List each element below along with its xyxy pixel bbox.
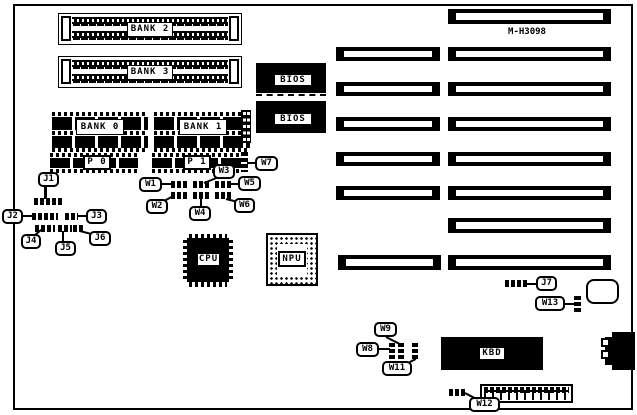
jumper-label-j2: J2 (2, 209, 23, 224)
bank1-label: BANK 1 (179, 119, 227, 135)
expansion-slot (448, 218, 611, 233)
jumper-label-j5: J5 (55, 241, 76, 256)
dip-pin-row (52, 148, 148, 152)
expansion-slot-ext (336, 152, 440, 166)
board-id-label: M-H3098 (497, 26, 557, 37)
jumper-w9 (398, 343, 404, 359)
p0-label: P 0 (83, 155, 111, 170)
expansion-slot-ext (336, 47, 440, 61)
simm-clip (229, 16, 239, 41)
jumper-label-w4: W4 (189, 206, 211, 221)
leader-line (378, 348, 390, 350)
jumper-label-w2: W2 (146, 199, 168, 214)
jumper-label-w5: W5 (238, 176, 261, 191)
jumper-label-j4: J4 (21, 234, 41, 249)
expansion-slot (448, 186, 611, 200)
simm-clip (61, 59, 71, 84)
bank0-label: BANK 0 (76, 119, 124, 135)
battery-outline (586, 279, 619, 304)
jumper-label-j7: J7 (536, 276, 557, 291)
jumper-label-w13: W13 (535, 296, 565, 311)
jumper-label-w7: W7 (255, 156, 278, 171)
keyboard-connector-pin (601, 338, 610, 347)
jumper-label-w8: W8 (356, 342, 379, 357)
jumper-label-w1: W1 (139, 177, 162, 192)
connector-j1 (34, 198, 64, 205)
jumper-label-j3: J3 (86, 209, 107, 224)
expansion-slot-ext (338, 255, 441, 270)
keyboard-connector (612, 332, 635, 370)
jumper-j5 (58, 225, 72, 232)
kbd-label: KBD (478, 346, 506, 361)
dip-chip-row (154, 136, 250, 148)
bank3-label: BANK 3 (127, 65, 173, 80)
leader-line (22, 215, 33, 217)
jumper-w8 (389, 343, 395, 359)
jumper-w11 (412, 343, 418, 359)
npu-label: NPU (278, 251, 306, 267)
bios1-label: BIOS (273, 73, 313, 87)
p1-label: P 1 (183, 155, 211, 170)
expansion-slot (448, 82, 611, 96)
jumper-label-w11: W11 (382, 361, 412, 376)
leader-line (44, 186, 47, 199)
jumper-label-w12: W12 (469, 397, 500, 412)
expansion-slot (448, 9, 611, 24)
expansion-slot (448, 117, 611, 131)
bank2-label: BANK 2 (127, 22, 173, 37)
cpu-label: CPU (196, 252, 221, 267)
expansion-slot (448, 47, 611, 61)
simm-clip (229, 59, 239, 84)
jumper-label-j6: J6 (89, 231, 111, 246)
bios-divider-dashed-line (256, 94, 326, 96)
dip-pin-row (154, 148, 250, 152)
jumper-j7 (505, 280, 527, 287)
dip-pin-row (52, 112, 148, 116)
jumper-j2 (32, 213, 58, 220)
keyboard-connector-pin (601, 350, 610, 359)
jumper-w12 (449, 389, 466, 396)
pin-header (241, 110, 251, 143)
jumper-label-w6: W6 (234, 198, 255, 213)
motherboard-diagram: M-H3098 BANK 2 BANK 3 BANK 0 BANK 1 P 0 … (0, 0, 637, 415)
jumper-label-w3: W3 (213, 164, 235, 179)
expansion-slot (448, 255, 611, 270)
bios2-label: BIOS (273, 112, 313, 126)
cpu-pins-bottom (189, 282, 227, 287)
expansion-slot-ext (336, 82, 440, 96)
jumper-label-w9: W9 (374, 322, 397, 337)
jumper-w13 (574, 296, 581, 312)
expansion-slot-ext (336, 117, 440, 131)
jumper-w5 (215, 181, 232, 188)
jumper-w1 (171, 181, 188, 188)
expansion-slot (448, 152, 611, 166)
dip-chip-row (52, 136, 148, 148)
jumper-label-j1: J1 (38, 172, 59, 187)
expansion-slot-ext (336, 186, 440, 200)
dip-pin-row (154, 112, 250, 116)
simm-clip (61, 16, 71, 41)
